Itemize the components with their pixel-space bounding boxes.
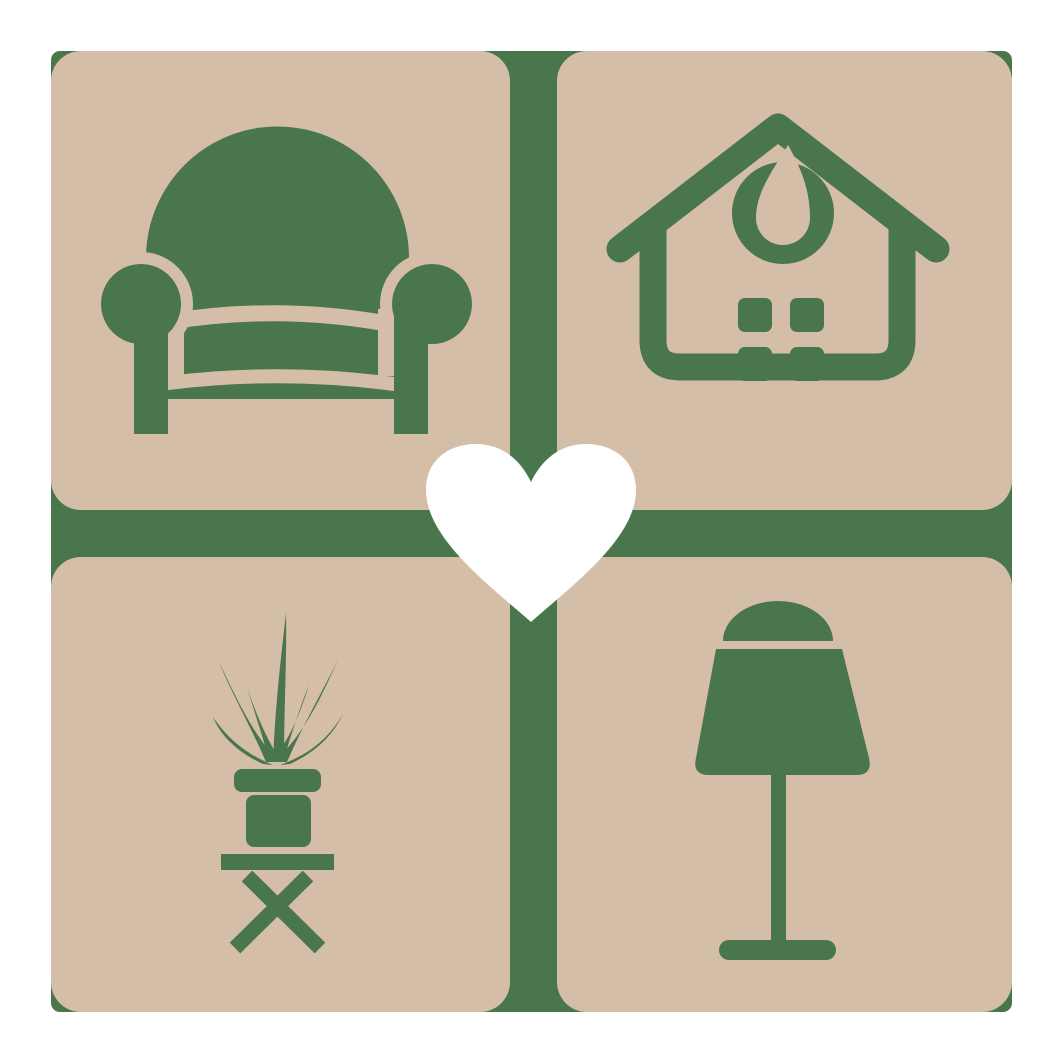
logo-canvas [0,0,1063,1063]
tile-top-left [51,51,510,510]
house-window-pane [738,347,772,381]
house-window-pane [790,347,824,381]
plant-pot [246,795,311,847]
armchair-leg-left [134,304,168,434]
tile-bottom-right [557,557,1012,1012]
house-window-pane [790,298,824,332]
house-window-pane [738,298,772,332]
plant-pot-rim [234,769,321,792]
tile-bottom-left [51,557,510,1012]
lamp-base [719,940,836,960]
lamp-shade [695,649,870,775]
armchair-gap-seat [168,376,394,384]
tile-top-right [557,51,1012,510]
lamp-stem [771,775,786,942]
plant-stand-top [221,854,334,870]
armchair-leg-right [394,304,428,434]
furniture-home-logo [0,0,1063,1063]
